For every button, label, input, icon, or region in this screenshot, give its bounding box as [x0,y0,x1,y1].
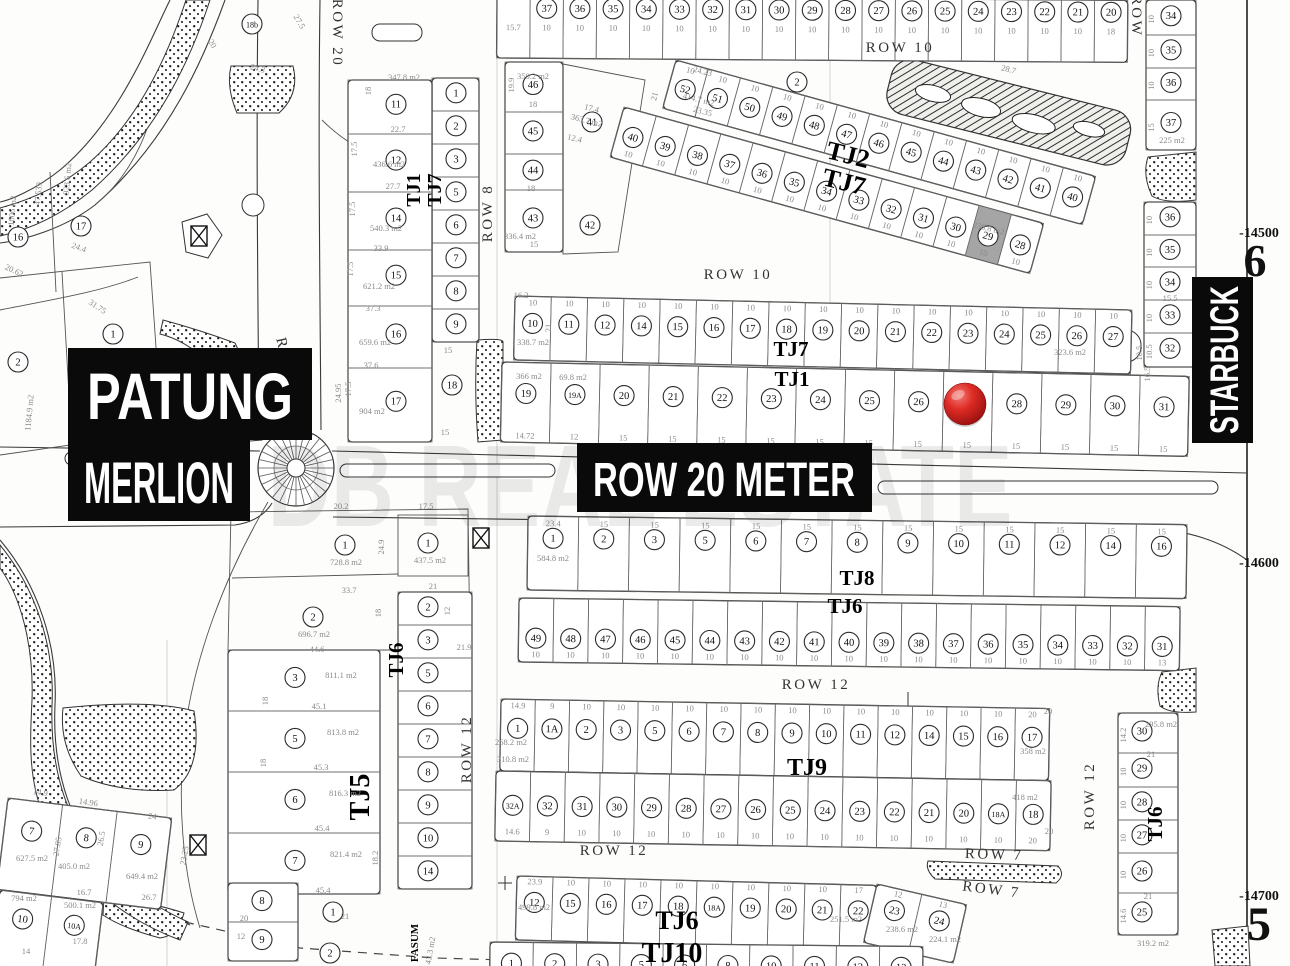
dim-label: 10 [671,651,680,661]
lot-number: 2 [425,602,430,613]
dim-label: 225 m2 [1159,135,1185,145]
lot-number: 11 [564,320,574,331]
dim-label: 43.3 m2 [423,936,438,965]
tj7-upper-strip: 1010111012101410151016101710181019102010… [514,296,1132,374]
dim-label: 10 [1053,656,1062,666]
dim-label: 238.6 m2 [886,924,918,934]
lot-number: 35 [1166,45,1177,56]
dim-label: 224.1 m2 [929,934,961,944]
dim-label: 10 [974,25,983,35]
dim-label: 336.4 m2 [504,231,536,241]
block-label: TJ6 [655,906,698,935]
dim-label: 17.8 [73,936,88,946]
lot-number: 17 [391,397,402,408]
dim-label: 10 [928,306,937,316]
lone-lot: 42 [580,215,600,235]
tj1-left-col: 111214151617 [348,80,432,442]
lot-number: 17 [1027,733,1038,744]
lot-number: 48 [565,634,576,645]
dim-label: 10 [705,651,714,661]
lot-number: 10 [821,729,832,740]
dim-label: 350.2 m2 [517,71,549,81]
lot-number: 25 [1137,907,1148,918]
lot-number: 17 [76,221,87,232]
lot-number: 38 [913,639,924,650]
block-label: TJ8 [839,566,874,590]
lot-number: 24 [815,395,826,406]
lot-number: 45 [528,126,539,137]
lot-number: 43 [528,213,539,224]
lot-number: 10 [17,914,29,926]
lot-number: 20 [854,326,865,337]
dim-label: 10 [1118,871,1128,880]
dim-label: 15.5 [1163,293,1178,303]
dim-label: 15 [1061,442,1070,452]
lot-number: 10 [527,319,538,330]
dim-label: 436.6 m2 [373,159,405,169]
dim-label: 17.5 [349,142,359,157]
dim-label: 10 [1144,314,1154,323]
lot-number: 21 [924,808,935,819]
dim-label: 33.9 [374,243,389,253]
dim-label: 10 [651,703,660,713]
dim-label: 10 [1123,657,1132,667]
lot-number: 9 [259,935,264,946]
lot-number: 27 [1108,332,1119,343]
lot-number: 14 [423,866,434,877]
lot-number: 16 [709,323,720,334]
lot-number: 12 [852,962,863,966]
dim-label: 24.95 [333,383,343,402]
dim-label: 26.7 [142,892,157,902]
dim-label: 10 [674,880,683,890]
lot-number: 23 [766,394,777,405]
lone-lot: 2 [787,72,807,92]
dim-label: 10 [1040,26,1049,36]
lot-number: 18 [781,324,792,335]
grid-coordinate: 5 [1247,898,1271,951]
dim-label: 37.3 [366,303,381,313]
lot-number: 3 [595,960,600,966]
lot-number: 29 [1137,764,1148,775]
dim-label: 584.8 m2 [537,553,569,563]
row20meter-label-box: ROW 20 METER [577,443,872,512]
lot-number: 5 [292,734,297,745]
block-label: TJ10 [642,938,703,966]
block-label: TJ9 [787,755,827,781]
dim-label: 696.7 m2 [298,629,330,639]
dim-label: 10 [959,834,968,844]
dim-label: 10 [941,25,950,35]
dim-label: 23.25 [177,845,190,866]
survey-mark-icon [190,835,206,855]
lot-number: 10 [766,961,777,966]
tj9-upper-strip: 114.91A921031051061071081091010101110121… [500,699,1050,781]
lot-number: 12 [890,730,901,741]
lot-number: 45 [670,635,681,646]
dim-label: 10 [1118,767,1128,776]
dim-label: 816.3 m2 [329,788,361,798]
lot-number: 21 [1073,7,1084,18]
lot-number: 17 [637,901,648,912]
lot-number: 1A [545,724,558,735]
dim-label: 405.0 m2 [58,861,90,871]
lot-number: 36 [1165,212,1176,223]
dim-label: 10 [855,832,864,842]
dim-label: 18 [527,183,536,193]
road-label: ROW 12 [1082,762,1098,830]
lot-number: 33 [1165,310,1176,321]
dim-label: 10 [1146,15,1156,24]
block-label: TJ7 [773,337,808,361]
dim-label: 14.6 [1118,909,1128,924]
dim-label: 10 [907,25,916,35]
dim-label: 10 [949,655,958,665]
lot-number: 31 [577,802,588,813]
dim-label: 10 [914,654,923,664]
dim-label: 811.1 m2 [325,670,357,680]
dim-label: 10 [609,23,618,33]
dim-label: 10 [685,703,694,713]
dim-label: 10 [647,829,656,839]
road-label: ROW 12 [459,715,475,783]
dim-label: 28.7 [1000,62,1017,75]
grid-coordinate: -14600 [1239,556,1279,571]
dim-label: 18 [529,99,538,109]
road-label: ROW [1128,0,1144,37]
dim-label: 10 [575,23,584,33]
lot-number: 36 [983,639,994,650]
dim-label: 10 [675,23,684,33]
dim-label: 21 [341,911,350,921]
lot-number: 14 [636,321,647,332]
dim-label: 10 [925,707,934,717]
dim-label: 31.75 [87,297,108,316]
lot-number: 1 [330,907,335,918]
dim-label: 10 [1146,81,1156,90]
lot-number: 12 [1055,540,1066,551]
lot-number: 5 [652,726,657,737]
lot-number: 37 [541,4,552,15]
lot-number: 23 [854,807,865,818]
lot-number: 1 [509,959,514,966]
dim-label: 15 [1157,526,1166,536]
lot-number: 32 [542,801,553,812]
lot-number: 2 [794,77,799,88]
lot-number: 33 [674,5,685,16]
dim-label: 10 [740,652,749,662]
lot-number: 9 [425,800,430,811]
dim-label: 10 [1144,281,1154,290]
row8-left-col: 12356789 [432,78,479,342]
dim-label: 10 [855,305,864,315]
dim-label: 27.5 [292,13,308,31]
dim-label: 10 [566,650,575,660]
lot-number: 36 [1166,78,1177,89]
dim-label: 20 [206,37,219,49]
dim-label: 15 [1012,441,1021,451]
lot-number: 44 [705,636,716,647]
dim-label: 10 [924,833,933,843]
lot-number: 2 [552,959,557,966]
dim-label: 18 [258,759,268,768]
dim-label: 17.5 [343,382,353,397]
lot-number: 7 [425,734,430,745]
dim-label: 338.7 m2 [517,337,549,347]
dim-label: 10 [681,829,690,839]
lot-number: 14 [924,731,935,742]
dim-label: 10.5 [1134,346,1144,361]
dim-label: 10 [994,835,1003,845]
lot-number: 24 [999,329,1010,340]
lot-number: 8 [755,728,760,739]
lot-number: 22 [717,393,728,404]
dim-label: 10 [710,881,719,891]
dim-label: 20 [240,913,249,923]
dim-label: 24.4 [70,240,88,255]
dim-label: 17.4 [583,101,601,114]
lot-number: 34 [1165,277,1176,288]
dim-label: 23.9 [527,876,542,886]
dim-label: 10 [1007,26,1016,36]
lot-number: 22 [1039,7,1050,18]
lot-number: 7 [721,727,726,738]
lot-number: 18A [991,810,1005,819]
site-plan-map: 15.7371036103510341033103210311030102910… [0,0,1290,966]
lot-number: 28 [681,804,692,815]
lone-lot: 16 [8,227,28,247]
dim-label: 10 [1037,309,1046,319]
lot-number: 29 [1060,400,1071,411]
lot-number: 17 [745,324,756,335]
dim-label: 14.2 [1118,728,1128,743]
lone-lot: 2 [320,943,340,963]
lot-number: 18b [246,20,258,29]
dim-label: 10 [751,830,760,840]
lot-number: 29 [646,803,657,814]
dim-label: 18 [373,609,383,618]
dim-label: 18.2 [370,851,380,866]
dim-label: 21 [429,581,438,591]
dim-label: 10 [782,883,791,893]
dim-label: 10 [783,303,792,313]
dim-label: 45.1 [312,701,327,711]
dim-label: 20 [1028,709,1037,719]
dim-label: 310.8 m2 [497,754,529,764]
lot-number: 2 [453,121,458,132]
dim-label: 10 [892,306,901,316]
dim-label: 10 [1088,656,1097,666]
road-label: ROW 20 [329,0,345,67]
dim-label: 1184.9 m2 [22,394,35,431]
dim-label: 10 [719,704,728,714]
block-label: TJ7 [424,173,446,206]
lot-number: 26 [750,805,761,816]
dim-label: 45.4 [316,885,332,895]
dim-label: 17.5 [347,202,357,217]
block-label: TJ6 [384,642,408,677]
dim-label: 358 m2 [1020,746,1046,756]
dim-label: 10 [636,651,645,661]
lot-number: 25 [785,805,796,816]
lot-number: 6 [453,220,458,231]
road-label: ROW 12 [580,843,648,859]
dim-label: 16.2 [514,290,529,300]
lot-number: 25 [1035,330,1046,341]
lot-number: 35 [608,4,619,15]
dim-label: 10 [1146,49,1156,58]
right-col-top-b: 36103510341033103210.5 [1144,202,1196,367]
dim-label: 14.9 [32,786,48,798]
lot-number: 10A [67,921,82,932]
block-label: TJ1 [774,367,809,391]
dim-label: 10 [741,24,750,34]
survey-mark-icon [191,226,207,246]
dim-label: 10 [565,298,574,308]
lot-number: 32 [707,5,718,16]
lot-number: 2 [583,725,588,736]
site-plan-screenshot: 15.7371036103510341033103210311030102910… [0,0,1290,966]
lot-number: 6 [292,795,297,806]
dim-label: 499.8 m2 [518,902,550,912]
lot-number: 40 [844,638,855,649]
starbuck-label-box: STARBUCK [1192,277,1253,443]
dim-label: 10 [841,24,850,34]
lot-number: 44 [528,166,539,177]
lot-number: 32 [1122,641,1133,652]
dim-label: 16.5 [1142,367,1152,382]
lot-number: 31 [1159,402,1170,413]
lot-number: 20 [958,808,969,819]
dim-label: 10 [874,25,883,35]
dim-label: 10 [1118,834,1128,843]
lot-number: 11 [809,962,819,966]
lot-number: 7 [453,253,458,264]
dim-label: 9 [545,827,549,837]
lot-number: 21 [668,392,679,403]
dim-label: 10 [818,884,827,894]
lot-number: 22 [889,807,900,818]
dim-label: 10 [808,24,817,34]
merlion-label-box: MERLION [68,440,250,521]
lot-number: 32 [1165,344,1176,355]
lot-number: 23 [963,329,974,340]
lot-number: 46 [528,80,539,91]
dim-label: 10 [716,830,725,840]
dim-label: 728.8 m2 [330,557,362,567]
dim-label: 659.6 m2 [359,337,391,347]
lot-number: 22 [926,328,937,339]
dim-label: 10 [786,831,795,841]
lot-number: 1 [110,329,115,340]
dim-label: 10 [542,22,551,32]
dim-label: 17 [854,885,863,895]
dim-label: 21 [1144,891,1153,901]
dim-label: 47.539 [32,182,44,206]
lot-number: 25 [864,396,875,407]
lot-number: 18 [1028,810,1039,821]
dim-label: 366 m2 [516,371,542,381]
lot-number: 11 [391,100,401,111]
dim-label: 45.3 [314,762,329,772]
lot-number: 3 [618,725,623,736]
dim-label: 10 [984,655,993,665]
dim-label: 10 [819,304,828,314]
lot-number: 21 [890,327,901,338]
lot-number: 16 [1156,542,1167,553]
dim-label: 14.6 [505,826,520,836]
lot-number: 8 [259,896,264,907]
dim-label: 621.2 m2 [363,281,395,291]
road-label: ROW 12 [782,677,850,693]
dim-label: 813.8 m2 [327,727,359,737]
dim-label: 10 [810,653,819,663]
dim-label: 15 [1056,525,1065,535]
tj10-strip: 12356810111213 [490,942,923,966]
lone-lot: 2 [8,352,28,372]
dim-label: 20 [1045,826,1054,836]
dim-label: 21 [648,91,660,102]
dim-label: 10 [531,649,540,659]
lot-number: 11 [855,730,865,741]
lot-number: 43 [739,636,750,647]
lot-number: 15 [958,731,969,742]
tj9-lower-strip: 32A14.6329311030102910281027102610251024… [495,771,1051,851]
lone-lot: 2 [303,607,323,627]
lone-lot: 18 [442,375,462,395]
lot-number: 12 [600,320,611,331]
dim-label: 17.5 [345,262,355,277]
lot-number: 26 [907,6,918,17]
row10-top-strip: 15.7371036103510341033103210311030102910… [497,0,1128,62]
lot-number: 9 [453,319,458,330]
lot-number: 18 [447,380,458,391]
lot-number: 39 [879,638,890,649]
block-label: TJ1 [403,173,425,206]
dim-label: 10 [601,299,610,309]
dim-label: 323.6 m2 [1054,347,1086,357]
lot-number: 21 [817,905,828,916]
dim-label: 10 [1073,310,1082,320]
road-label: ROW 10 [866,40,934,56]
dim-label: 10 [566,877,575,887]
lot-number: 9 [789,728,794,739]
lot-number: 15 [565,899,576,910]
lot-number: 29 [807,6,818,17]
dim-label: 10 [964,307,973,317]
lot-number: 33 [1087,641,1098,652]
row20meter-label: ROW 20 METER [593,454,855,507]
lot-number: 30 [774,5,785,16]
lot-number: 1 [515,724,520,735]
lot-number: 16 [391,329,402,340]
lot-number: 42 [585,220,596,231]
lot-number: 28 [840,6,851,17]
lot-number: 3 [292,673,297,684]
lone-lot: 18b [242,14,262,34]
lot-number: 34 [641,4,652,15]
lot-number: 20 [1106,8,1117,19]
lot-number: 47 [600,634,611,645]
dim-label: 10 [857,706,866,716]
dim-label: 12.4 [566,131,584,144]
dim-label: 10 [775,652,784,662]
dim-label: 15 [1146,123,1156,132]
dim-label: 15 [444,345,453,355]
dim-label: 10 [879,654,888,664]
dim-label: 268.2 m2 [495,737,527,747]
road-label: ROW 7 [965,846,1024,864]
